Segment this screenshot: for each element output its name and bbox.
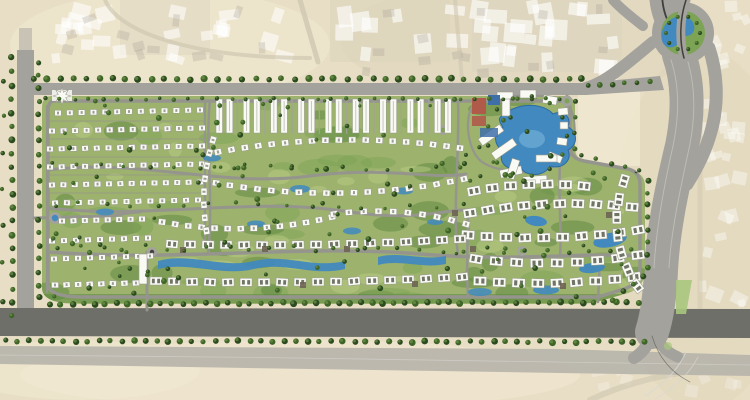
buildings-26	[536, 155, 557, 162]
buildings-46	[262, 246, 268, 252]
streets-7	[559, 163, 560, 256]
buildings-22	[558, 107, 569, 115]
buildings-49	[470, 246, 476, 252]
buildings-53	[412, 281, 418, 287]
sport-court-red-2	[472, 116, 486, 126]
water-13	[343, 228, 361, 235]
master-plan-svg	[0, 0, 750, 400]
buildings-50	[560, 283, 566, 289]
buildings-24	[557, 137, 568, 145]
buildings-47	[344, 246, 350, 252]
water-1	[519, 130, 545, 148]
gatehouse-strip	[139, 254, 147, 284]
buildings-51	[606, 212, 612, 218]
water-14	[96, 209, 114, 216]
clubhouse-star-building	[53, 87, 71, 105]
buildings-52	[300, 282, 306, 288]
buildings-48	[452, 210, 458, 216]
buildings-23	[560, 122, 568, 129]
boundary-roads-22	[664, 342, 672, 350]
west-road	[17, 50, 34, 320]
streets-26	[565, 99, 570, 104]
site-master-plan	[0, 0, 750, 400]
east-sand-pocket	[578, 88, 640, 166]
water-8	[468, 288, 492, 296]
streets-20	[52, 215, 58, 221]
sport-court-blue-2	[480, 128, 498, 137]
boundary-roads-3	[19, 28, 32, 50]
water-15	[427, 219, 443, 225]
